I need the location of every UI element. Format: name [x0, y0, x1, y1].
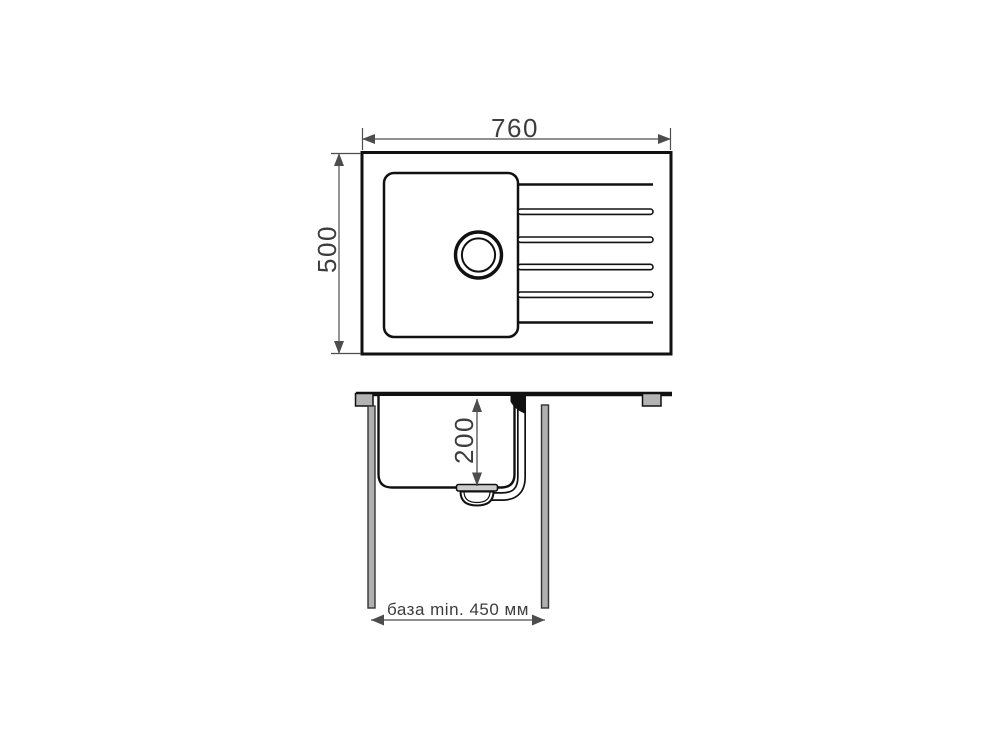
basin-outline-section [379, 396, 515, 488]
basin-outline-top [384, 173, 518, 337]
cabinet-wall-right [542, 405, 549, 608]
sink-drawing-canvas: 760 500 200 база min. 450 мм [0, 0, 1000, 750]
groove-bar [518, 292, 653, 297]
width-dimension-label: 760 [480, 114, 550, 142]
arrow-down-icon [334, 341, 344, 354]
arrow-left-icon [362, 134, 375, 144]
arrow-up-icon [334, 153, 344, 166]
arrow-right-icon [658, 134, 671, 144]
base-cabinet-label: база min. 450 мм [368, 600, 548, 620]
groove-bar [518, 209, 653, 214]
top-view [331, 128, 671, 354]
groove-bar [518, 237, 653, 242]
mounting-clip-right [643, 394, 662, 407]
mounting-clip-left [356, 394, 374, 407]
section-view [356, 394, 673, 626]
groove-bar [518, 264, 653, 269]
cabinet-wall-left [368, 406, 375, 608]
height-dimension-label: 500 [313, 214, 341, 284]
depth-dimension-label: 200 [450, 405, 478, 475]
